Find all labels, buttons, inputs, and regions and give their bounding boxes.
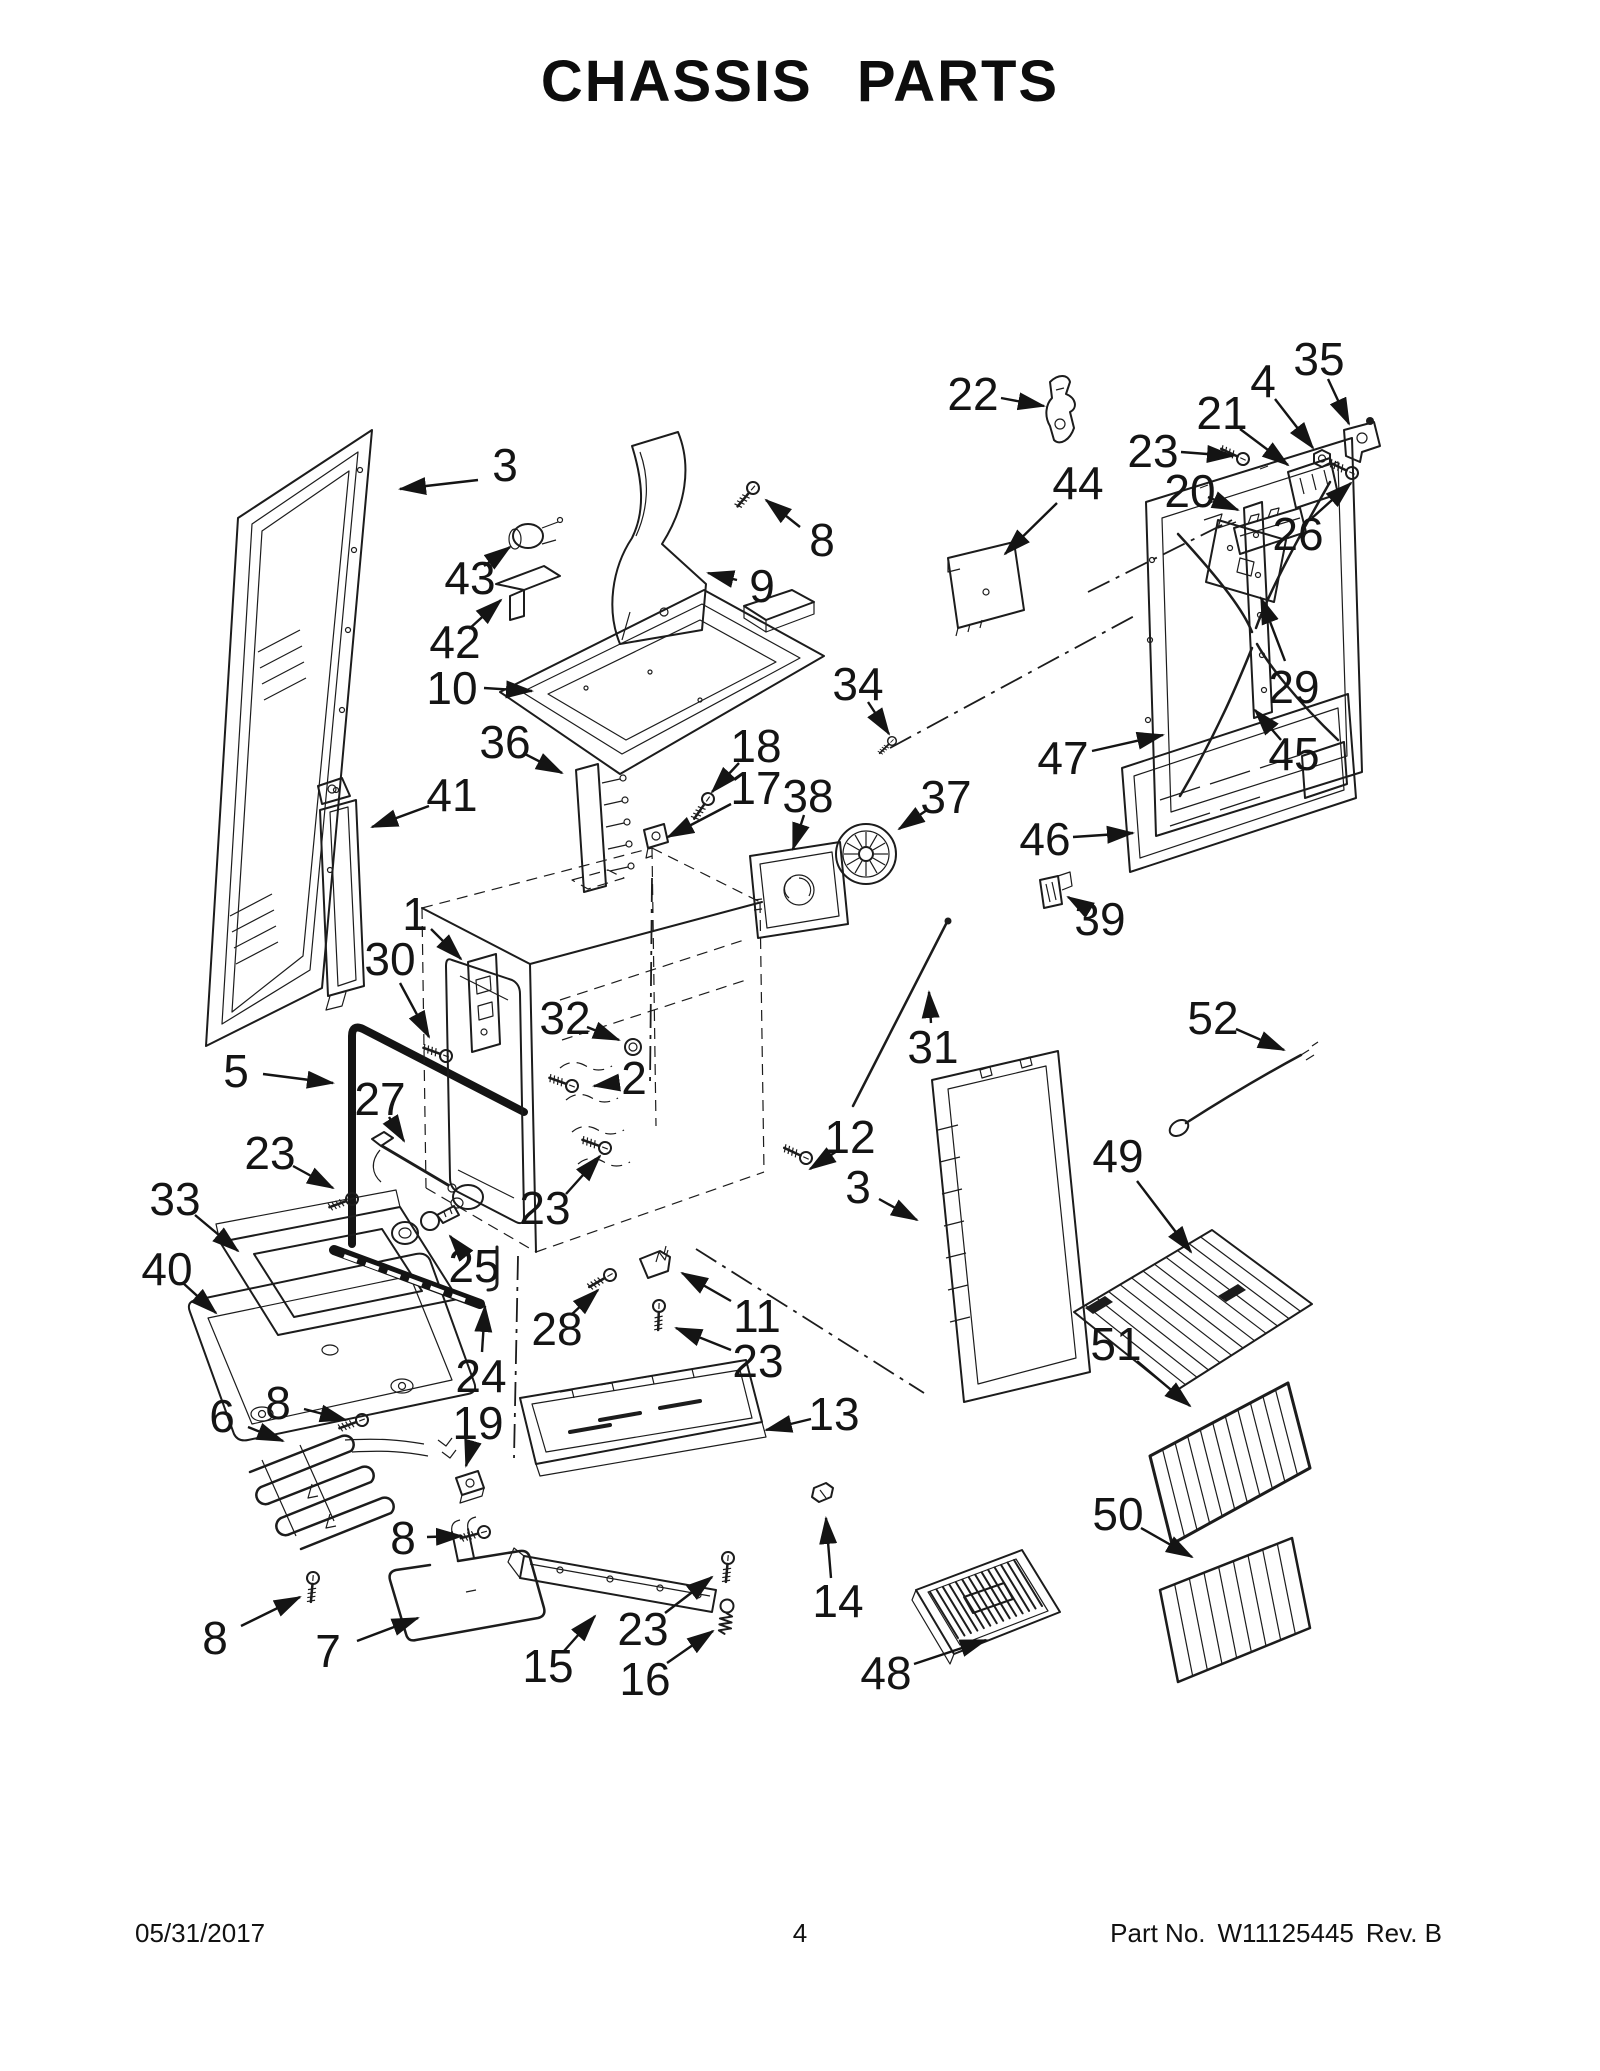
oven-racks-art — [1074, 1230, 1312, 1682]
screw-icon — [720, 1551, 735, 1582]
part-label-38: 38 — [782, 770, 833, 849]
part-label-26: 26 — [1272, 483, 1351, 560]
svg-text:48: 48 — [860, 1647, 911, 1699]
footer-part-number: Part No.W11125445Rev. B — [1098, 1918, 1442, 1949]
part-label-36: 36 — [479, 716, 562, 773]
svg-text:28: 28 — [531, 1303, 582, 1355]
probe-harness-art — [1167, 1042, 1318, 1139]
svg-text:16: 16 — [619, 1653, 670, 1705]
svg-text:34: 34 — [832, 658, 883, 710]
anti-tip-bracket-art — [1046, 376, 1075, 442]
svg-text:17: 17 — [730, 762, 781, 814]
screw-icon — [586, 1267, 618, 1292]
part-label-43: 43 — [444, 547, 510, 604]
part-label-32: 32 — [539, 992, 619, 1044]
left-side-panel-art — [206, 430, 372, 1046]
svg-text:23: 23 — [244, 1127, 295, 1179]
part-label-39: 39 — [1068, 893, 1126, 945]
part-label-3: 3 — [400, 439, 518, 491]
drawer-body-art — [520, 1360, 766, 1476]
svg-text:31: 31 — [907, 1021, 958, 1073]
drawer-front-frame-art — [216, 1190, 458, 1335]
svg-text:23: 23 — [519, 1182, 570, 1234]
latch-catch-art — [640, 1246, 670, 1278]
svg-text:7: 7 — [315, 1625, 341, 1677]
screw-icon — [547, 1072, 579, 1094]
svg-text:38: 38 — [782, 770, 833, 822]
svg-text:52: 52 — [1187, 992, 1238, 1044]
part-label-28: 28 — [531, 1290, 598, 1355]
svg-text:37: 37 — [920, 771, 971, 823]
screw-icon — [782, 1142, 814, 1166]
part-label-40: 40 — [141, 1243, 216, 1313]
glide-rail-art — [508, 1548, 716, 1612]
part-label-19: 19 — [452, 1397, 503, 1466]
svg-text:49: 49 — [1092, 1130, 1143, 1182]
part-label-17: 17 — [668, 762, 782, 837]
svg-text:51: 51 — [1090, 1318, 1141, 1370]
part-label-11: 11 — [682, 1273, 781, 1342]
svg-text:39: 39 — [1074, 893, 1125, 945]
lower-oven-rack-art — [1160, 1538, 1310, 1682]
part-label-8: 8 — [202, 1597, 300, 1664]
svg-text:23: 23 — [617, 1603, 668, 1655]
part-label-51: 51 — [1090, 1318, 1190, 1406]
svg-text:25: 25 — [448, 1240, 499, 1292]
part-label-15: 15 — [522, 1616, 595, 1692]
chassis-parts-diagram: 3894342103618173841343722442321435262029… — [0, 0, 1600, 2071]
svg-text:8: 8 — [265, 1377, 291, 1429]
screw-icon — [337, 1412, 369, 1434]
svg-text:32: 32 — [539, 992, 590, 1044]
svg-text:5: 5 — [223, 1045, 249, 1097]
part-label-23: 23 — [244, 1127, 333, 1188]
svg-text:12: 12 — [824, 1111, 875, 1163]
part-label-2: 2 — [594, 1052, 647, 1104]
oven-cavity-art — [422, 848, 764, 1252]
svg-text:8: 8 — [809, 514, 835, 566]
screw-icon — [652, 1300, 665, 1330]
part-label-33: 33 — [149, 1173, 238, 1251]
svg-text:20: 20 — [1164, 465, 1215, 517]
part-label-24: 24 — [455, 1306, 506, 1402]
part-label-13: 13 — [766, 1388, 860, 1440]
svg-text:14: 14 — [812, 1575, 863, 1627]
svg-text:43: 43 — [444, 552, 495, 604]
fan-vent-cover-art — [750, 842, 848, 938]
part-label-20: 20 — [1164, 465, 1238, 517]
part-label-22: 22 — [947, 368, 1044, 420]
svg-text:29: 29 — [1268, 661, 1319, 713]
screw-icon — [689, 791, 716, 822]
part-label-31: 31 — [907, 992, 958, 1073]
part-label-52: 52 — [1187, 992, 1284, 1050]
part-label-42: 42 — [429, 600, 501, 668]
screw-icon — [733, 480, 761, 511]
part-label-25: 25 — [448, 1236, 499, 1292]
svg-text:40: 40 — [141, 1243, 192, 1295]
svg-text:8: 8 — [202, 1612, 228, 1664]
svg-text:30: 30 — [364, 933, 415, 985]
part-label-8: 8 — [390, 1512, 462, 1564]
part-label-50: 50 — [1092, 1488, 1192, 1557]
spring-screw-icon — [718, 1599, 734, 1635]
svg-text:9: 9 — [749, 560, 775, 612]
part-label-27: 27 — [354, 1073, 405, 1141]
screw-strip-bracket-art — [576, 764, 634, 892]
svg-text:3: 3 — [845, 1161, 871, 1213]
part-label-9: 9 — [708, 560, 775, 612]
part-label-23: 23 — [617, 1577, 712, 1655]
vent-motor-art — [509, 518, 563, 550]
svg-text:6: 6 — [209, 1390, 235, 1442]
control-board-art — [948, 542, 1024, 636]
svg-text:47: 47 — [1037, 732, 1088, 784]
part-label-35: 35 — [1293, 333, 1349, 424]
svg-text:10: 10 — [426, 662, 477, 714]
part-label-10: 10 — [426, 662, 532, 714]
part-label-49: 49 — [1092, 1130, 1191, 1252]
svg-text:46: 46 — [1019, 813, 1070, 865]
screw-icon — [305, 1571, 320, 1602]
support-rod-art — [853, 918, 952, 1107]
middle-oven-rack-art — [1150, 1383, 1310, 1544]
part-label-47: 47 — [1037, 732, 1163, 784]
part-label-34: 34 — [832, 658, 889, 734]
svg-text:22: 22 — [947, 368, 998, 420]
right-side-panel-art — [932, 1051, 1090, 1402]
part-no-label: Part No. — [1110, 1918, 1205, 1948]
svg-text:42: 42 — [429, 616, 480, 668]
part-label-41: 41 — [372, 769, 478, 827]
svg-text:24: 24 — [455, 1350, 506, 1402]
latch-plate-art — [468, 954, 500, 1052]
broil-element-art — [250, 1436, 456, 1549]
svg-text:4: 4 — [1250, 355, 1276, 407]
svg-text:41: 41 — [426, 769, 477, 821]
part-label-45: 45 — [1255, 710, 1320, 780]
spacer-clip-art — [456, 1471, 484, 1503]
part-label-44: 44 — [1005, 457, 1104, 554]
svg-text:19: 19 — [452, 1397, 503, 1449]
part-label-3: 3 — [845, 1161, 917, 1220]
lower-rear-panel-art — [1122, 694, 1356, 872]
part-label-37: 37 — [899, 771, 972, 829]
svg-text:3: 3 — [492, 439, 518, 491]
small-bracket-art — [1040, 872, 1072, 908]
svg-text:36: 36 — [479, 716, 530, 768]
svg-text:26: 26 — [1272, 508, 1323, 560]
part-label-23: 23 — [519, 1156, 600, 1234]
part-label-8: 8 — [766, 500, 835, 566]
parts-diagram-page: CHASSIS PARTS — [0, 0, 1600, 2071]
part-label-30: 30 — [364, 933, 429, 1037]
part-label-5: 5 — [223, 1045, 333, 1097]
svg-text:13: 13 — [808, 1388, 859, 1440]
part-label-46: 46 — [1019, 813, 1133, 865]
convection-fan-art — [836, 824, 896, 884]
svg-text:33: 33 — [149, 1173, 200, 1225]
svg-text:27: 27 — [354, 1073, 405, 1125]
part-no-value: W11125445 — [1218, 1918, 1354, 1948]
motor-clip-art — [496, 566, 560, 620]
svg-text:45: 45 — [1268, 728, 1319, 780]
warming-grille-art — [912, 1550, 1060, 1664]
svg-text:2: 2 — [621, 1052, 647, 1104]
screw-icon — [459, 1525, 491, 1544]
svg-text:44: 44 — [1052, 457, 1103, 509]
oven-sensor-art — [372, 1132, 456, 1192]
svg-text:35: 35 — [1293, 333, 1344, 385]
retainer-clip-art — [812, 1483, 833, 1502]
grounding-clip-art — [644, 824, 668, 858]
svg-text:50: 50 — [1092, 1488, 1143, 1540]
svg-text:15: 15 — [522, 1640, 573, 1692]
page-footer: 05/31/2017 4 Part No.W11125445Rev. B — [0, 1918, 1600, 1958]
part-callouts: 3894342103618173841343722442321435262029… — [141, 333, 1351, 1705]
part-label-14: 14 — [812, 1518, 863, 1627]
svg-text:23: 23 — [732, 1335, 783, 1387]
svg-text:21: 21 — [1196, 387, 1247, 439]
svg-text:8: 8 — [390, 1512, 416, 1564]
screw-icon — [580, 1134, 612, 1156]
revision: Rev. B — [1366, 1918, 1442, 1948]
